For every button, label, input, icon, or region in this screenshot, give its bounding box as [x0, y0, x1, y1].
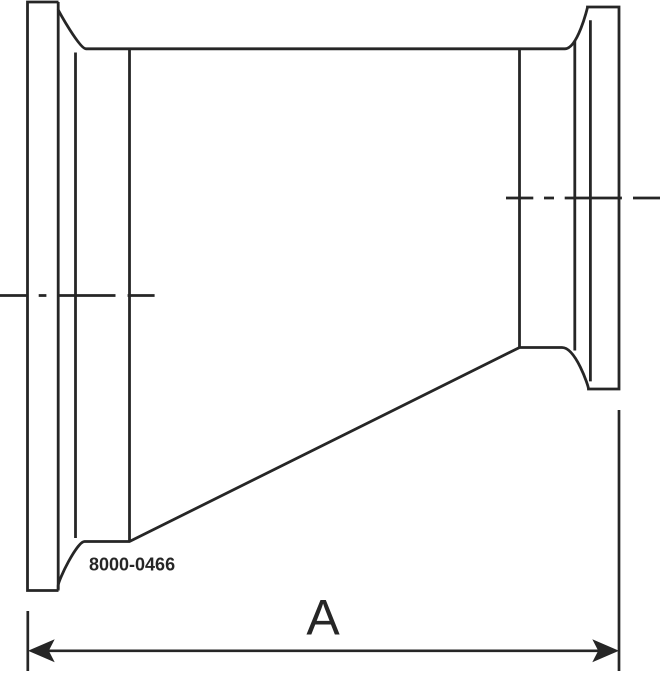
svg-text:A: A	[306, 590, 340, 646]
svg-text:8000-0466: 8000-0466	[89, 555, 175, 575]
